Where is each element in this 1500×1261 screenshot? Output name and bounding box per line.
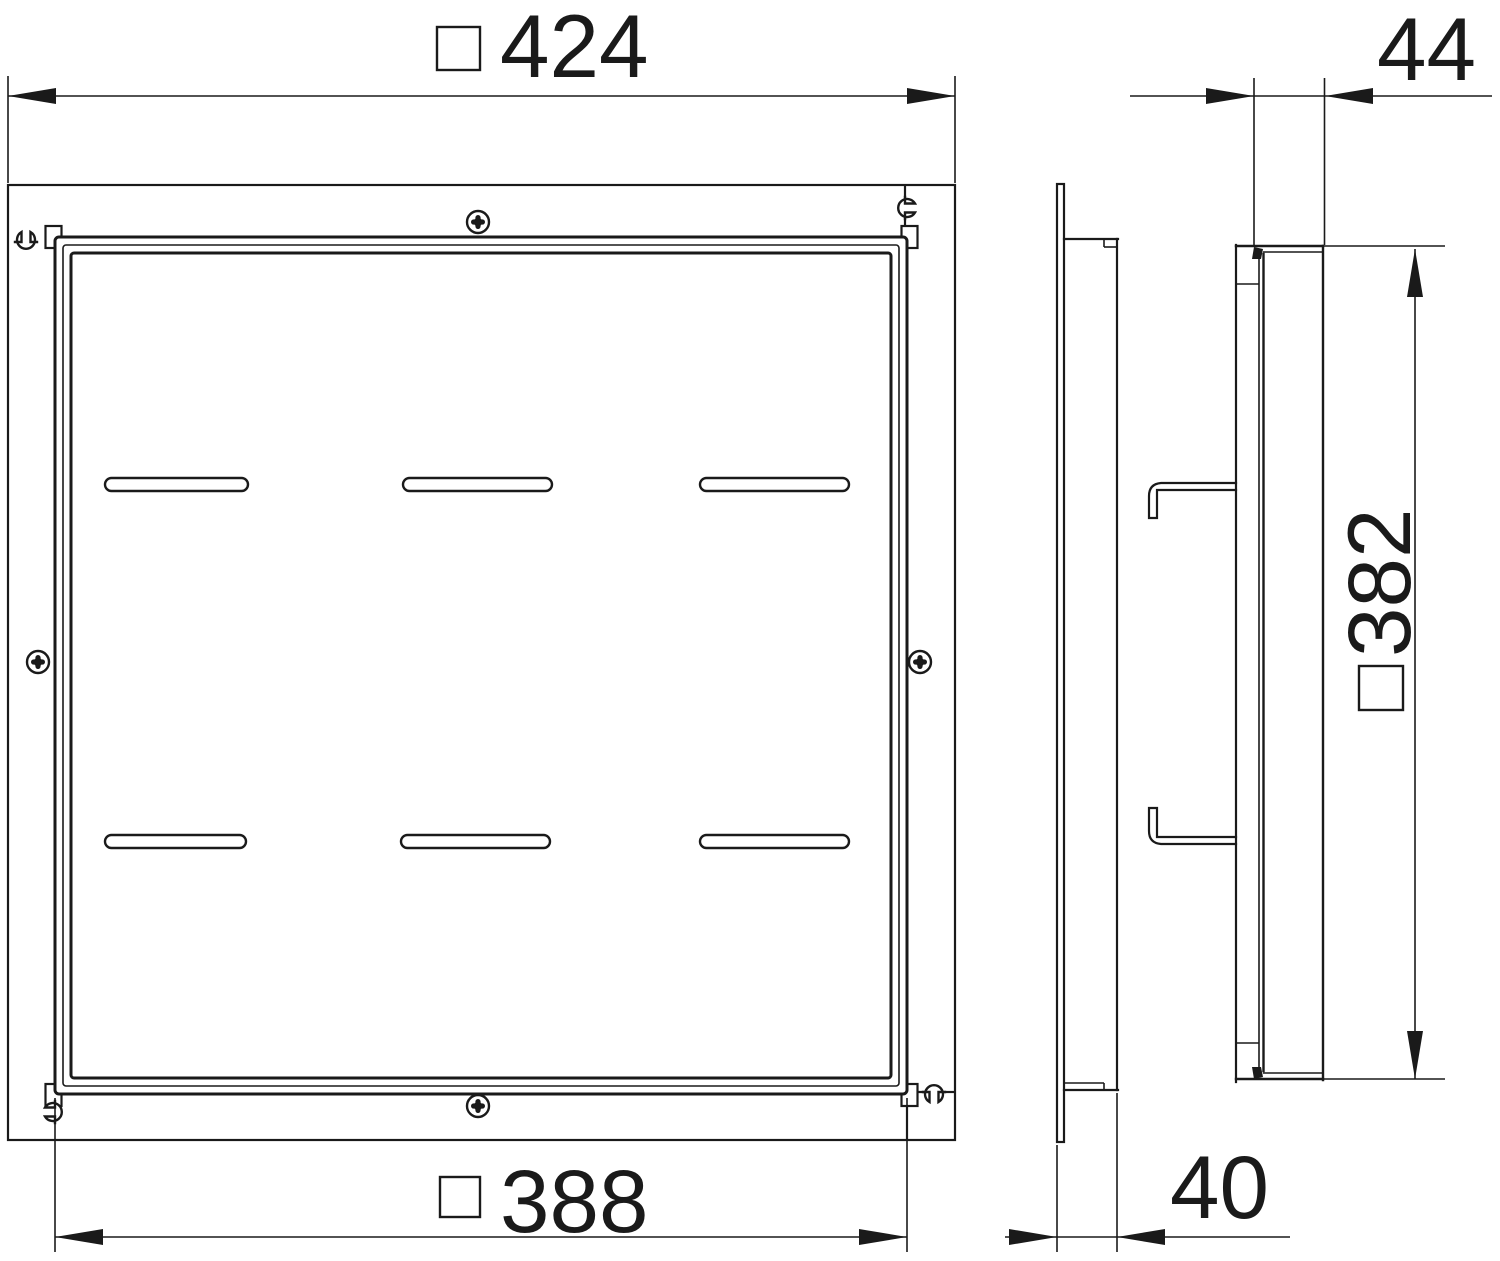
cover-edge-hook-top: [1252, 247, 1263, 259]
slot: [403, 478, 552, 491]
dimension-label-424: 424: [500, 0, 649, 96]
dimension-label-382: 382: [1329, 509, 1429, 658]
arrowhead-right: [1117, 1229, 1165, 1245]
frame-side-profile: [1057, 184, 1118, 1142]
arrowhead-right: [1325, 88, 1373, 104]
arrowhead-top: [1407, 249, 1423, 297]
mounting-claw-upper: [1149, 483, 1236, 518]
slot: [700, 835, 849, 848]
screw-head-top: [467, 211, 489, 233]
dimension-frame-depth: 40: [1005, 1093, 1290, 1252]
dimension-label-388: 388: [500, 1151, 649, 1251]
slot: [401, 835, 550, 848]
screw-head-right: [909, 651, 931, 673]
square-symbol: [437, 27, 480, 70]
arrowhead-right: [907, 88, 955, 104]
cover-side-profile: [1236, 245, 1323, 1082]
screw-head-bottom: [467, 1095, 489, 1117]
dimension-label-40: 40: [1170, 1137, 1269, 1237]
mounting-claw-lower: [1149, 808, 1236, 844]
slot: [700, 478, 849, 491]
front-view: [8, 185, 955, 1140]
cover-plate: [46, 226, 918, 1106]
frame-flange-plate: [1057, 184, 1064, 1142]
technical-drawing: 424 388 44 40: [0, 0, 1500, 1261]
dimension-cover-height: 382: [1323, 246, 1445, 1079]
cover-edge-hook-bottom: [1252, 1067, 1263, 1079]
dimension-label-44: 44: [1377, 0, 1476, 99]
slot: [105, 835, 246, 848]
dimension-cover-depth: 44: [1130, 0, 1492, 246]
cover-outline-outer: [55, 237, 907, 1094]
arrowhead-right: [859, 1229, 907, 1245]
arrowhead-bottom: [1407, 1031, 1423, 1079]
square-symbol: [1359, 666, 1403, 710]
arrowhead-left: [1009, 1229, 1057, 1245]
slot: [105, 478, 248, 491]
screw-head-left: [27, 651, 49, 673]
square-symbol: [440, 1177, 480, 1217]
side-view: [1057, 184, 1323, 1142]
arrowhead-left: [1206, 88, 1254, 104]
mounting-claws: [1149, 483, 1236, 844]
drawing-canvas: 424 388 44 40: [0, 0, 1500, 1261]
arrowhead-left: [55, 1229, 103, 1245]
dimension-outer-width: 424: [8, 0, 955, 183]
arrowhead-left: [8, 88, 56, 104]
